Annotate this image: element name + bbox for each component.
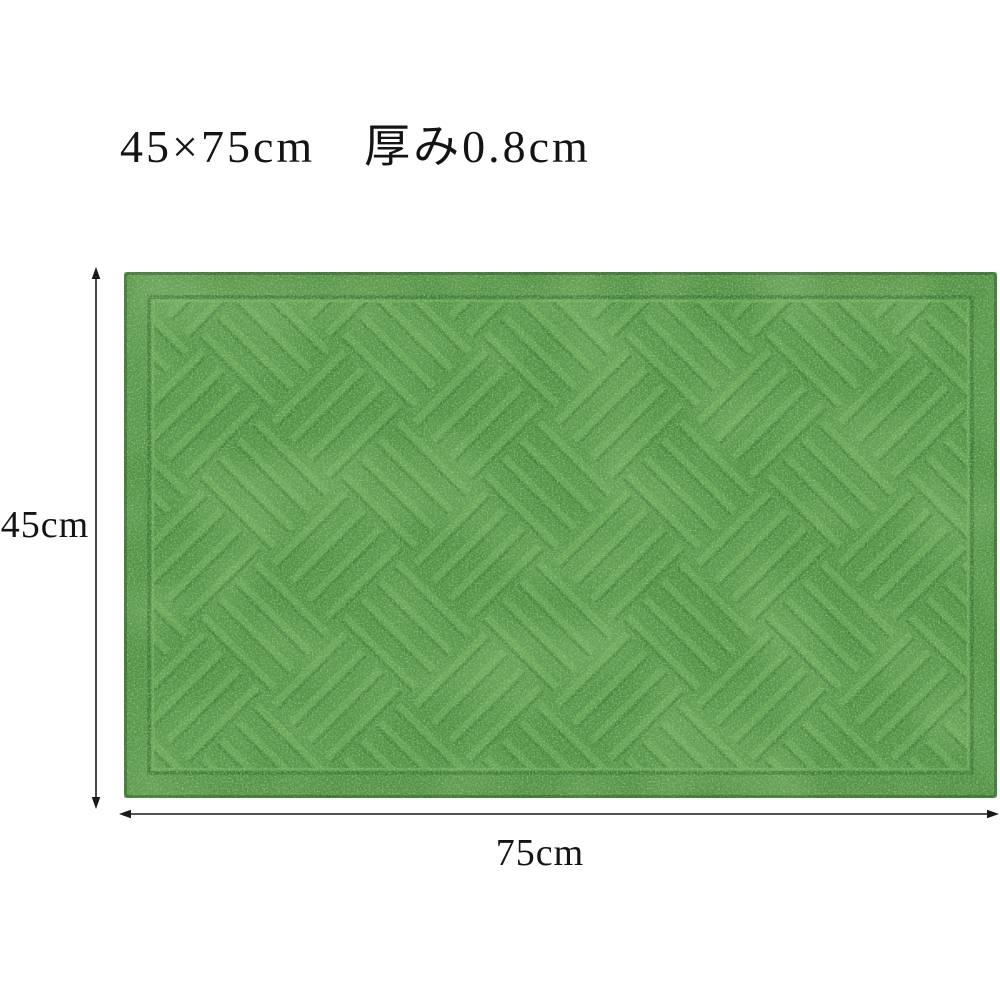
height-dimension-label: 45cm xyxy=(0,506,90,544)
doormat-photo xyxy=(124,272,997,798)
height-arrow-head-bottom xyxy=(92,797,101,809)
size-title: 45×75cm 厚み0.8cm xyxy=(120,124,591,170)
mat-light-speckle-layer xyxy=(124,272,997,798)
width-dimension-arrow xyxy=(117,804,1000,824)
width-dimension-label: 75cm xyxy=(455,834,625,872)
width-arrow-head-right xyxy=(987,810,999,819)
product-dimension-image: 45×75cm 厚み0.8cm xyxy=(0,0,1000,1000)
height-arrow-head-top xyxy=(92,267,101,279)
width-arrow-head-left xyxy=(119,810,131,819)
